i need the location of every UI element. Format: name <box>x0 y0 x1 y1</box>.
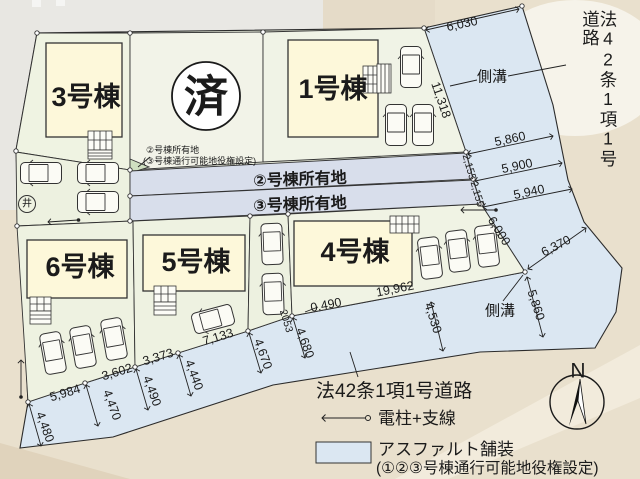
bottom-road-label: 法42条1項1号道路 <box>316 380 472 402</box>
car-icon <box>21 160 62 186</box>
car-icon <box>410 105 436 146</box>
sold-badge: 済 <box>172 62 240 130</box>
easement-annotation-line2: (③号棟通行可能地役権設定) <box>143 155 256 166</box>
porch-3 <box>88 131 112 159</box>
car-icon <box>383 105 409 146</box>
car-icon <box>258 223 285 265</box>
porch-4 <box>390 216 419 233</box>
porch-6 <box>30 297 51 324</box>
car-icon <box>398 47 424 88</box>
car-icon <box>259 273 286 315</box>
asphalt-label-line2: (①②③号棟通行可能地役権設定) <box>376 459 599 477</box>
porch-5 <box>154 286 176 315</box>
site-plan-drawing: 井 3号棟 1号棟 6号棟 5号棟 4号棟 済 ②号棟所有地 ③号棟所有地 ②号… <box>0 0 640 479</box>
car-icon <box>78 160 119 186</box>
label-building-6: 6号棟 <box>45 252 115 282</box>
site-plan-page: 井 3号棟 1号棟 6号棟 5号棟 4号棟 済 ②号棟所有地 ③号棟所有地 ②号… <box>0 0 640 479</box>
compass-north-label: N <box>570 360 585 383</box>
well-mark: 井 <box>22 197 32 210</box>
sold-mark: 済 <box>184 73 229 122</box>
asphalt-label-line1: アスファルト舗装 <box>378 440 514 459</box>
pole-label: 電柱+支線 <box>378 409 456 428</box>
easement-annotation-line1: ②号棟所有地 <box>146 144 199 155</box>
right-road-label: 法42条1項1号道路 <box>581 10 616 185</box>
car-icon <box>78 189 119 215</box>
well-symbol: 井 <box>19 196 36 213</box>
gutter-label-top: 側溝 <box>477 69 507 86</box>
label-building-3: 3号棟 <box>51 82 121 112</box>
label-building-4: 4号棟 <box>320 237 390 267</box>
asphalt-swatch <box>316 442 371 463</box>
gutter-label-bottom: 側溝 <box>485 303 515 320</box>
label-building-1: 1号棟 <box>298 74 368 104</box>
label-building-5: 5号棟 <box>161 247 231 277</box>
